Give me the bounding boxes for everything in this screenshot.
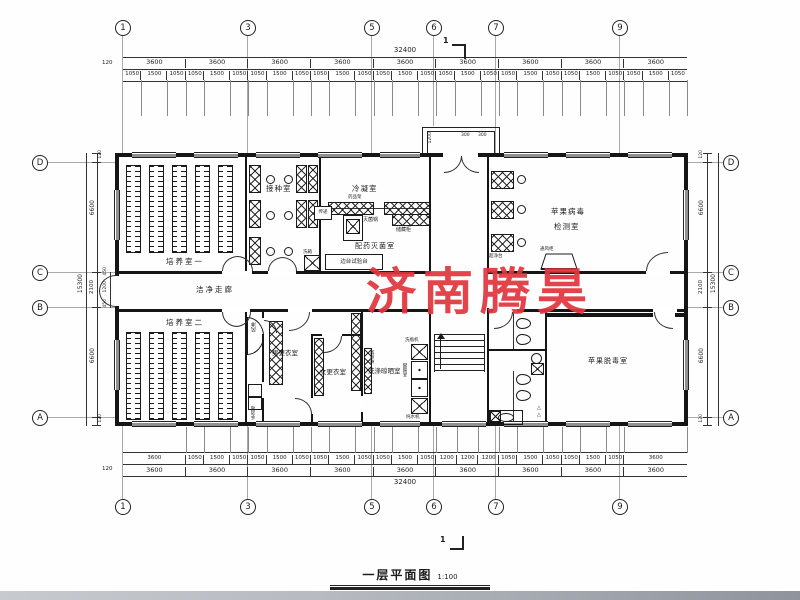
dim-cell: 3600 <box>436 57 499 69</box>
room-label-prep: 配药灭菌室 <box>355 241 395 251</box>
dim-right-120-bottom: 120 <box>699 414 704 423</box>
dim-cell: 1500 <box>580 69 606 81</box>
door-arc <box>444 156 462 173</box>
dim-cell: 1050 <box>669 69 687 81</box>
culture-rack <box>126 332 141 420</box>
pass-window: 传递 <box>314 206 332 220</box>
toilet <box>516 374 531 385</box>
dim-left-6600-lower: 6600 <box>89 348 96 363</box>
section-bracket-bottom <box>450 536 464 550</box>
room-label-men-changing: 男更衣室 <box>272 347 298 357</box>
stool <box>266 247 275 256</box>
dim-cell: 3600 <box>123 57 186 69</box>
dim-cell: 3600 <box>311 57 374 69</box>
stool <box>266 211 275 220</box>
dim-cell: 1500 <box>517 69 543 81</box>
clean-bench <box>491 234 514 252</box>
dim-cell: 3600 <box>499 57 562 69</box>
wall-inner <box>245 157 247 271</box>
air-shower-label: 风淋 <box>250 322 257 332</box>
window <box>380 152 420 158</box>
section-mark-bottom: 1 <box>440 535 446 544</box>
hand-wash-basin <box>248 384 262 397</box>
window <box>628 152 672 158</box>
dim-cell: 3600 <box>562 57 625 69</box>
dim-cell: 1050 <box>606 69 624 81</box>
toilet <box>516 390 531 401</box>
door-arc <box>324 336 342 353</box>
sterilizer-label: 灭菌锅 <box>363 216 378 223</box>
dim-right-120-top: 120 <box>699 150 704 159</box>
window <box>114 190 120 240</box>
dim-cell: 1500 <box>643 69 669 81</box>
staircase <box>434 334 485 372</box>
dim-cell: 1050 <box>293 69 311 81</box>
window <box>318 421 362 427</box>
sterilizer-inner <box>346 219 360 234</box>
dim-right-2100: 2100 <box>698 280 704 294</box>
title-underline-thin <box>330 585 490 586</box>
bench <box>328 202 374 215</box>
dim-cell: 3600 <box>186 57 249 69</box>
room-label-corridor: 洁净走廊 <box>196 284 234 295</box>
culture-rack <box>149 332 164 420</box>
dim-cell: 1050 <box>499 69 517 81</box>
axis-bubble-right-B: B <box>723 300 739 316</box>
culture-rack <box>149 165 164 253</box>
floor-drain: △ <box>537 405 541 411</box>
porch-dim-300b: 300 <box>478 133 487 138</box>
grid-line-horizontal <box>47 162 117 163</box>
axis-bubble-left-C: C <box>32 265 48 281</box>
room-label-culture2: 培养室二 <box>166 317 204 328</box>
toilet <box>516 334 531 345</box>
window <box>380 421 420 427</box>
dim-cell: 3600 <box>374 57 437 69</box>
clean-bench <box>296 165 307 193</box>
culture-rack <box>195 332 210 420</box>
door-arc <box>461 156 479 173</box>
dim-cell: 1050 <box>186 69 204 81</box>
dim-value: 32400 <box>123 45 687 57</box>
dim-right-6600-lower: 6600 <box>698 348 705 363</box>
porch-dim-1200: 1200 <box>428 132 433 143</box>
bottle-washer-label: 洗瓶机 <box>405 337 419 343</box>
axis-bubble-bottom-5: 5 <box>364 499 380 515</box>
window <box>194 421 238 427</box>
dim-cell: 1050 <box>481 69 499 81</box>
distiller <box>411 361 428 379</box>
dim-left-6600-upper: 6600 <box>89 200 96 215</box>
window <box>256 421 300 427</box>
wash-box <box>304 255 321 271</box>
dim-cell: 1050 <box>562 69 580 81</box>
distiller-label: 蒸馏器 <box>403 363 409 377</box>
medicine-rack-label: 药品架 <box>348 194 362 200</box>
floor-plan-canvas: 1 3 5 6 7 9 1 3 5 6 7 9 D C B A D C B A … <box>0 0 800 600</box>
dim-line-right-inner <box>707 153 708 426</box>
culture-rack <box>172 332 187 420</box>
bottle-washer <box>411 344 428 360</box>
drawing-title: 一层平面图 <box>362 566 432 583</box>
door-arc <box>282 257 297 271</box>
dim-edge-top: 120 <box>102 60 113 66</box>
axis-bubble-bottom-6: 6 <box>426 499 442 515</box>
dim-line-left-inner <box>97 153 98 426</box>
wash-box-label: 洗箱 <box>303 249 312 255</box>
room-label-detox: 苹果脱毒室 <box>588 356 628 366</box>
title-underline-thick <box>330 587 490 590</box>
axis-bubble-right-C: C <box>723 265 739 281</box>
axis-bubble-bottom-1: 1 <box>115 499 131 515</box>
room-label-detect-line2: 检测室 <box>554 221 580 232</box>
page-edge-bar <box>0 591 800 600</box>
culture-rack <box>126 165 141 253</box>
axis-bubble-top-9: 9 <box>612 20 628 36</box>
clean-bench <box>491 201 514 219</box>
door-arc <box>289 312 310 331</box>
room-label-inoculation: 接种室 <box>266 183 292 194</box>
dim-cell: 1500 <box>267 69 293 81</box>
room-label-culture1: 培养室一 <box>166 256 204 267</box>
window <box>566 421 610 427</box>
storage-cabinet-label: 储藏柜 <box>396 226 411 233</box>
dim-right-total: 15300 <box>710 274 717 293</box>
dim-value: 32400 <box>123 477 687 489</box>
dim-cell: 1050 <box>418 69 436 81</box>
title-block: 一层平面图1:100 <box>330 564 490 590</box>
dim-cell: 1050 <box>167 69 185 81</box>
axis-bubble-top-3: 3 <box>240 20 256 36</box>
dim-cell: 1050 <box>624 69 642 81</box>
axis-bubble-bottom-3: 3 <box>240 499 256 515</box>
axis-bubble-top-5: 5 <box>364 20 380 36</box>
drawing-scale: 1:100 <box>437 573 457 581</box>
stool <box>284 247 293 256</box>
axis-bubble-top-6: 6 <box>426 20 442 36</box>
hand-sanitize-label: 手消毒 <box>251 406 257 420</box>
porch-dim-300a: 300 <box>461 133 470 138</box>
storage-cabinet <box>392 214 430 226</box>
axis-bubble-top-7: 7 <box>488 20 504 36</box>
culture-rack <box>172 165 187 253</box>
dim-left-120-bottom: 120 <box>98 414 103 423</box>
culture-rack <box>218 165 233 253</box>
dim-cell: 3600 <box>624 57 687 69</box>
dry-rack-label: 晾瓶架 <box>370 350 376 364</box>
dim-left-total: 15300 <box>77 274 84 293</box>
dim-cell: 1050 <box>123 69 141 81</box>
clean-bench <box>491 171 514 189</box>
stair-arrow-line <box>440 337 441 369</box>
window <box>256 152 300 158</box>
window <box>194 152 238 158</box>
axis-bubble-top-1: 1 <box>115 20 131 36</box>
distiller <box>411 379 428 397</box>
door-arc <box>222 256 238 271</box>
clean-bench <box>249 165 261 193</box>
stool <box>517 238 526 247</box>
pure-water-label: 纯水机 <box>406 414 420 420</box>
window <box>628 421 672 427</box>
axis-bubble-left-A: A <box>32 410 48 426</box>
dim-line-left-outer <box>86 153 87 426</box>
room-label-women-changing: 女更衣室 <box>320 366 346 376</box>
axis-bubble-right-A: A <box>723 410 739 426</box>
section-mark-top: 1 <box>443 36 449 45</box>
window <box>318 152 362 158</box>
dim-left-2100: 2100 <box>89 280 95 294</box>
dim-total-bottom: 32400 <box>123 476 687 489</box>
axis-bubble-left-B: B <box>32 300 48 316</box>
dim-left-450b: 450 <box>103 299 108 308</box>
wall-inner <box>545 311 547 422</box>
door-arc <box>268 257 283 271</box>
clean-bench <box>296 200 307 228</box>
culture-rack <box>218 332 233 420</box>
dim-cell: 1050 <box>311 69 329 81</box>
section-bracket-top <box>452 44 466 59</box>
room-label-washing: 洗涤晾晒室 <box>368 365 401 375</box>
axis-bubble-left-D: D <box>32 155 48 171</box>
dim-cell: 1500 <box>455 69 481 81</box>
dim-right-6600-upper: 6600 <box>698 200 705 215</box>
dim-fine-top: 1050150010501050150010501050150010501050… <box>123 69 687 82</box>
dim-cell: 1500 <box>329 69 355 81</box>
axis-bubble-right-D: D <box>723 155 739 171</box>
window <box>132 152 176 158</box>
stair-arrow-head <box>437 333 445 339</box>
door-arc <box>295 398 312 414</box>
room-label-detect-line1: 苹果病毒 <box>551 206 585 217</box>
dim-left-1200: 1200 <box>103 281 108 292</box>
dim-line-right-outer <box>718 153 719 426</box>
stool <box>284 211 293 220</box>
axis-bubble-bottom-9: 9 <box>612 499 628 515</box>
dim-cell: 3600 <box>248 57 311 69</box>
dim-cell: 1050 <box>436 69 454 81</box>
window <box>683 340 689 390</box>
dim-left-120-top: 120 <box>98 150 103 159</box>
dim-cell: 1050 <box>230 69 248 81</box>
clean-bench <box>249 237 261 265</box>
door-arc <box>222 312 237 327</box>
clean-bench <box>308 165 318 193</box>
door-arc <box>646 252 668 271</box>
window <box>114 340 120 390</box>
window <box>683 190 689 240</box>
dim-cell: 1050 <box>374 69 392 81</box>
dim-cell: 1500 <box>392 69 418 81</box>
grid-line-horizontal <box>47 417 117 418</box>
watermark-text: 济南腾昊 <box>366 252 594 324</box>
dim-cell: 1050 <box>355 69 373 81</box>
culture-rack <box>195 165 210 253</box>
dim-left-450a: 450 <box>103 267 108 276</box>
floor-box <box>531 363 544 375</box>
window <box>442 421 486 427</box>
window <box>132 421 176 427</box>
clean-bench <box>249 200 261 228</box>
dim-cell: 1500 <box>141 69 167 81</box>
window <box>566 152 610 158</box>
door-arc <box>654 312 673 329</box>
floor-box <box>490 411 501 422</box>
wall-toilet-mid <box>489 349 545 351</box>
room-label-condense: 冷凝室 <box>352 183 378 194</box>
locker <box>351 313 361 391</box>
window <box>504 152 548 158</box>
dim-cell: 1500 <box>204 69 230 81</box>
dim-edge-bottom: 120 <box>102 466 113 472</box>
dim-cell: 1050 <box>248 69 266 81</box>
stool <box>517 175 526 184</box>
floor-drain: △ <box>537 412 541 418</box>
pure-water-machine <box>411 398 428 414</box>
dim-cell: 1050 <box>543 69 561 81</box>
axis-bubble-bottom-7: 7 <box>488 499 504 515</box>
stool <box>517 205 526 214</box>
